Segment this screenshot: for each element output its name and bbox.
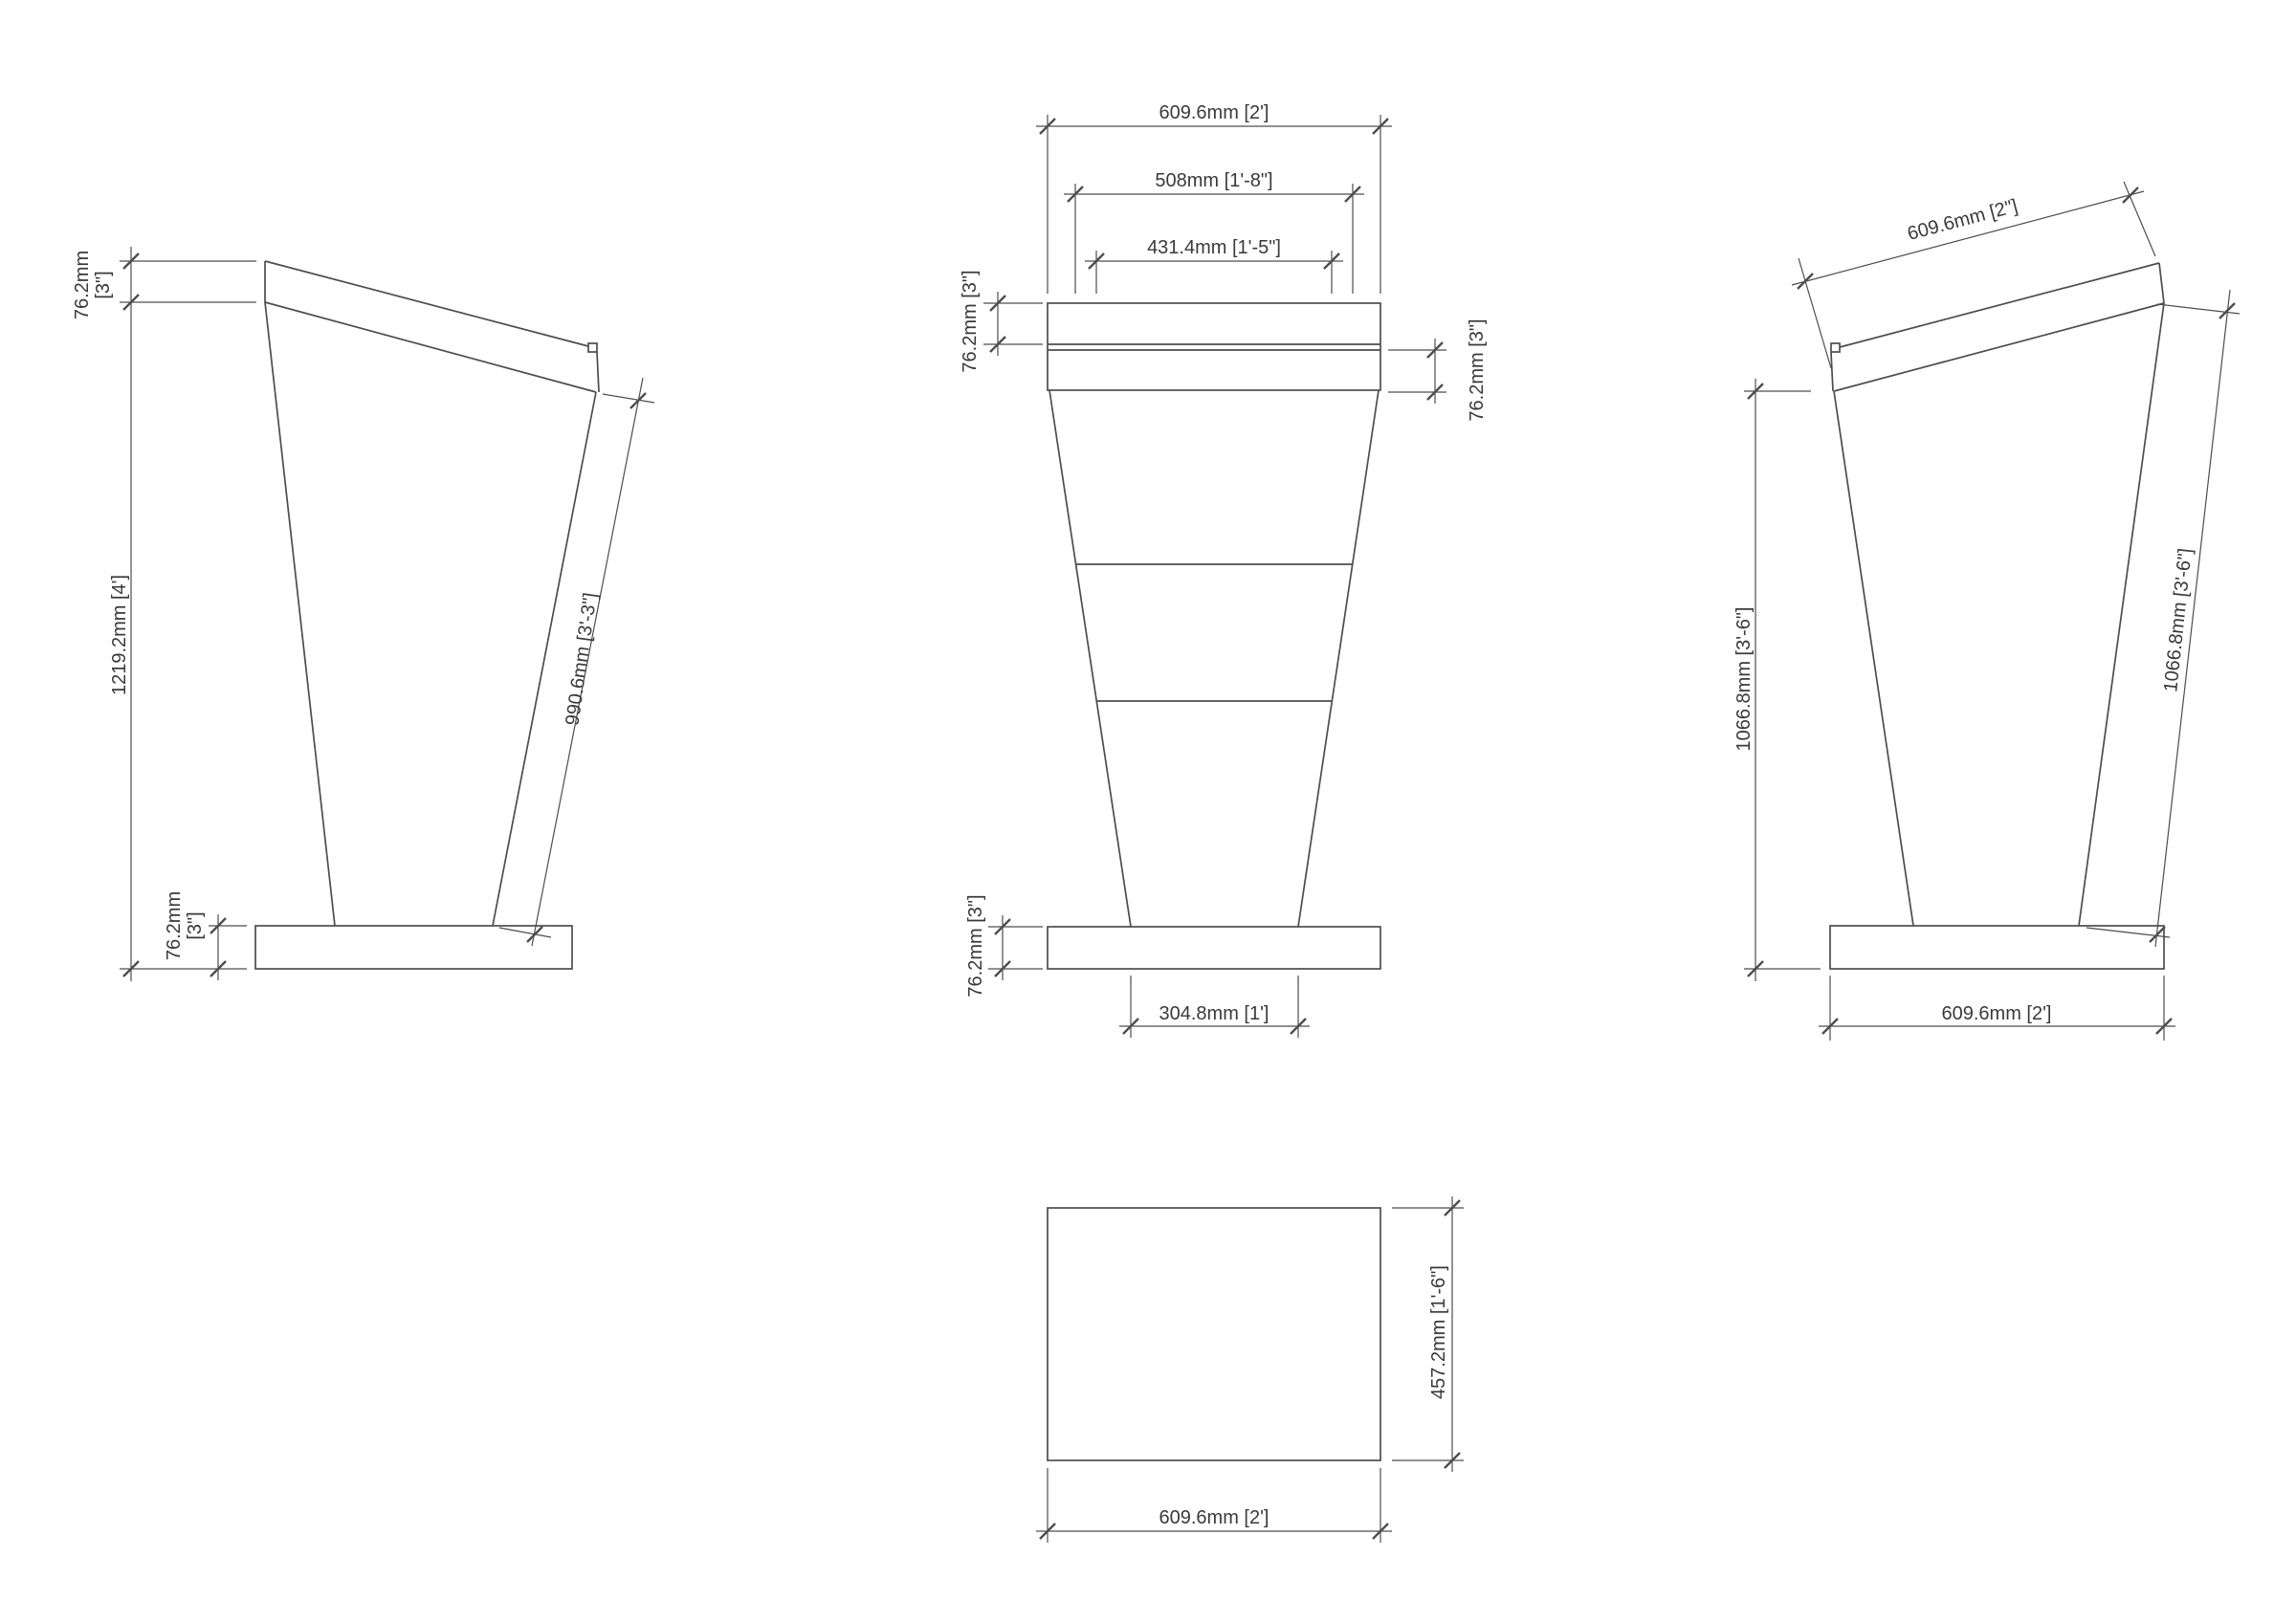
technical-drawing-canvas: 76.2mm [3"] 1219.2mm [4'] 990.6mm [3'-3"… xyxy=(0,0,2296,1623)
drawing-line xyxy=(1834,303,2164,391)
dim-base-thickness: 76.2mm [3"] xyxy=(965,894,986,997)
drawing-line xyxy=(1840,263,2159,347)
drawing-line xyxy=(499,928,551,937)
dim-height-to-desk: 1066.8mm [3'-6"] xyxy=(1733,607,1755,752)
drawing-line xyxy=(1831,343,1840,352)
drawing-line xyxy=(1792,191,2144,285)
dim-right-base-width: 609.6mm [2'] xyxy=(1942,1003,2052,1024)
drawing-line xyxy=(2079,303,2164,926)
right-side-view-outline xyxy=(1830,263,2164,969)
drawing-line xyxy=(2159,263,2164,303)
drawing-line xyxy=(1830,926,2164,969)
left-side-view-dimension-ticks xyxy=(123,253,646,976)
dim-front-edge-length: 1066.8mm [3'-6"] xyxy=(2160,547,2197,692)
dim-desk-front-thickness: 76.2mm [3"] xyxy=(960,270,981,372)
drawing-line xyxy=(603,394,654,403)
dim-overall-height: 1219.2mm [4'] xyxy=(109,575,130,695)
drawing-line xyxy=(588,343,597,352)
drawing-line xyxy=(1049,390,1131,927)
dim-back-edge-length: 990.6mm [3'-3"] xyxy=(562,591,601,727)
drawing-line xyxy=(265,302,596,392)
drawing-line xyxy=(1048,927,1380,969)
drawing-line xyxy=(1834,391,1913,926)
drawing-line xyxy=(1048,303,1380,390)
dim-base-height-mm: 76.2mm xyxy=(164,891,185,960)
right-side-view-dimensions xyxy=(1744,182,2240,1041)
dim-plan-depth: 457.2mm [1'-6"] xyxy=(1428,1265,1449,1399)
drawing-line xyxy=(1799,258,1831,368)
dim-stem-width: 304.8mm [1'] xyxy=(1159,1003,1269,1024)
plan-view-outline xyxy=(1048,1208,1380,1460)
left-side-view-outline xyxy=(255,261,599,969)
dim-base-height-imperial: [3"] xyxy=(185,911,206,939)
dim-top-width: 609.6mm [2'] xyxy=(1159,102,1269,123)
drawing-line xyxy=(2155,290,2230,947)
dim-inner-width: 431.4mm [1'-5"] xyxy=(1147,237,1281,258)
front-view: 609.6mm [2'] 508mm [1'-8"] 431.4mm [1'-5… xyxy=(960,102,1488,1038)
drawing-line xyxy=(2123,187,2138,203)
left-side-view: 76.2mm [3"] 1219.2mm [4'] 990.6mm [3'-3"… xyxy=(72,247,654,981)
dim-shelf-width: 508mm [1'-8"] xyxy=(1155,170,1272,191)
drawing-line xyxy=(1048,1208,1380,1460)
right-side-view: 609.6mm [2"] 1066.8mm [3'-6"] 1066.8mm [… xyxy=(1733,182,2240,1041)
front-view-outline xyxy=(1048,303,1380,969)
plan-view-dimension-ticks xyxy=(1040,1200,1460,1539)
dim-desk-rear-thickness: 76.2mm [3"] xyxy=(1467,318,1488,421)
dim-desk-thickness-imperial: [3"] xyxy=(93,271,114,298)
drawing-line xyxy=(1831,352,1833,391)
dim-desk-thickness-mm: 76.2mm xyxy=(72,251,93,319)
plan-view-dimensions xyxy=(1036,1196,1464,1543)
drawing-line xyxy=(1798,274,1813,289)
drawing-line xyxy=(1298,390,1379,927)
plan-view: 457.2mm [1'-6"] 609.6mm [2'] xyxy=(1036,1196,1464,1543)
dim-desk-top-length: 609.6mm [2"] xyxy=(1905,195,2020,244)
drawing-line xyxy=(265,302,335,926)
drawing-line xyxy=(265,261,588,346)
dim-plan-width: 609.6mm [2'] xyxy=(1159,1507,1269,1528)
drawing-line xyxy=(597,352,599,392)
left-side-view-dimensions xyxy=(120,247,654,981)
